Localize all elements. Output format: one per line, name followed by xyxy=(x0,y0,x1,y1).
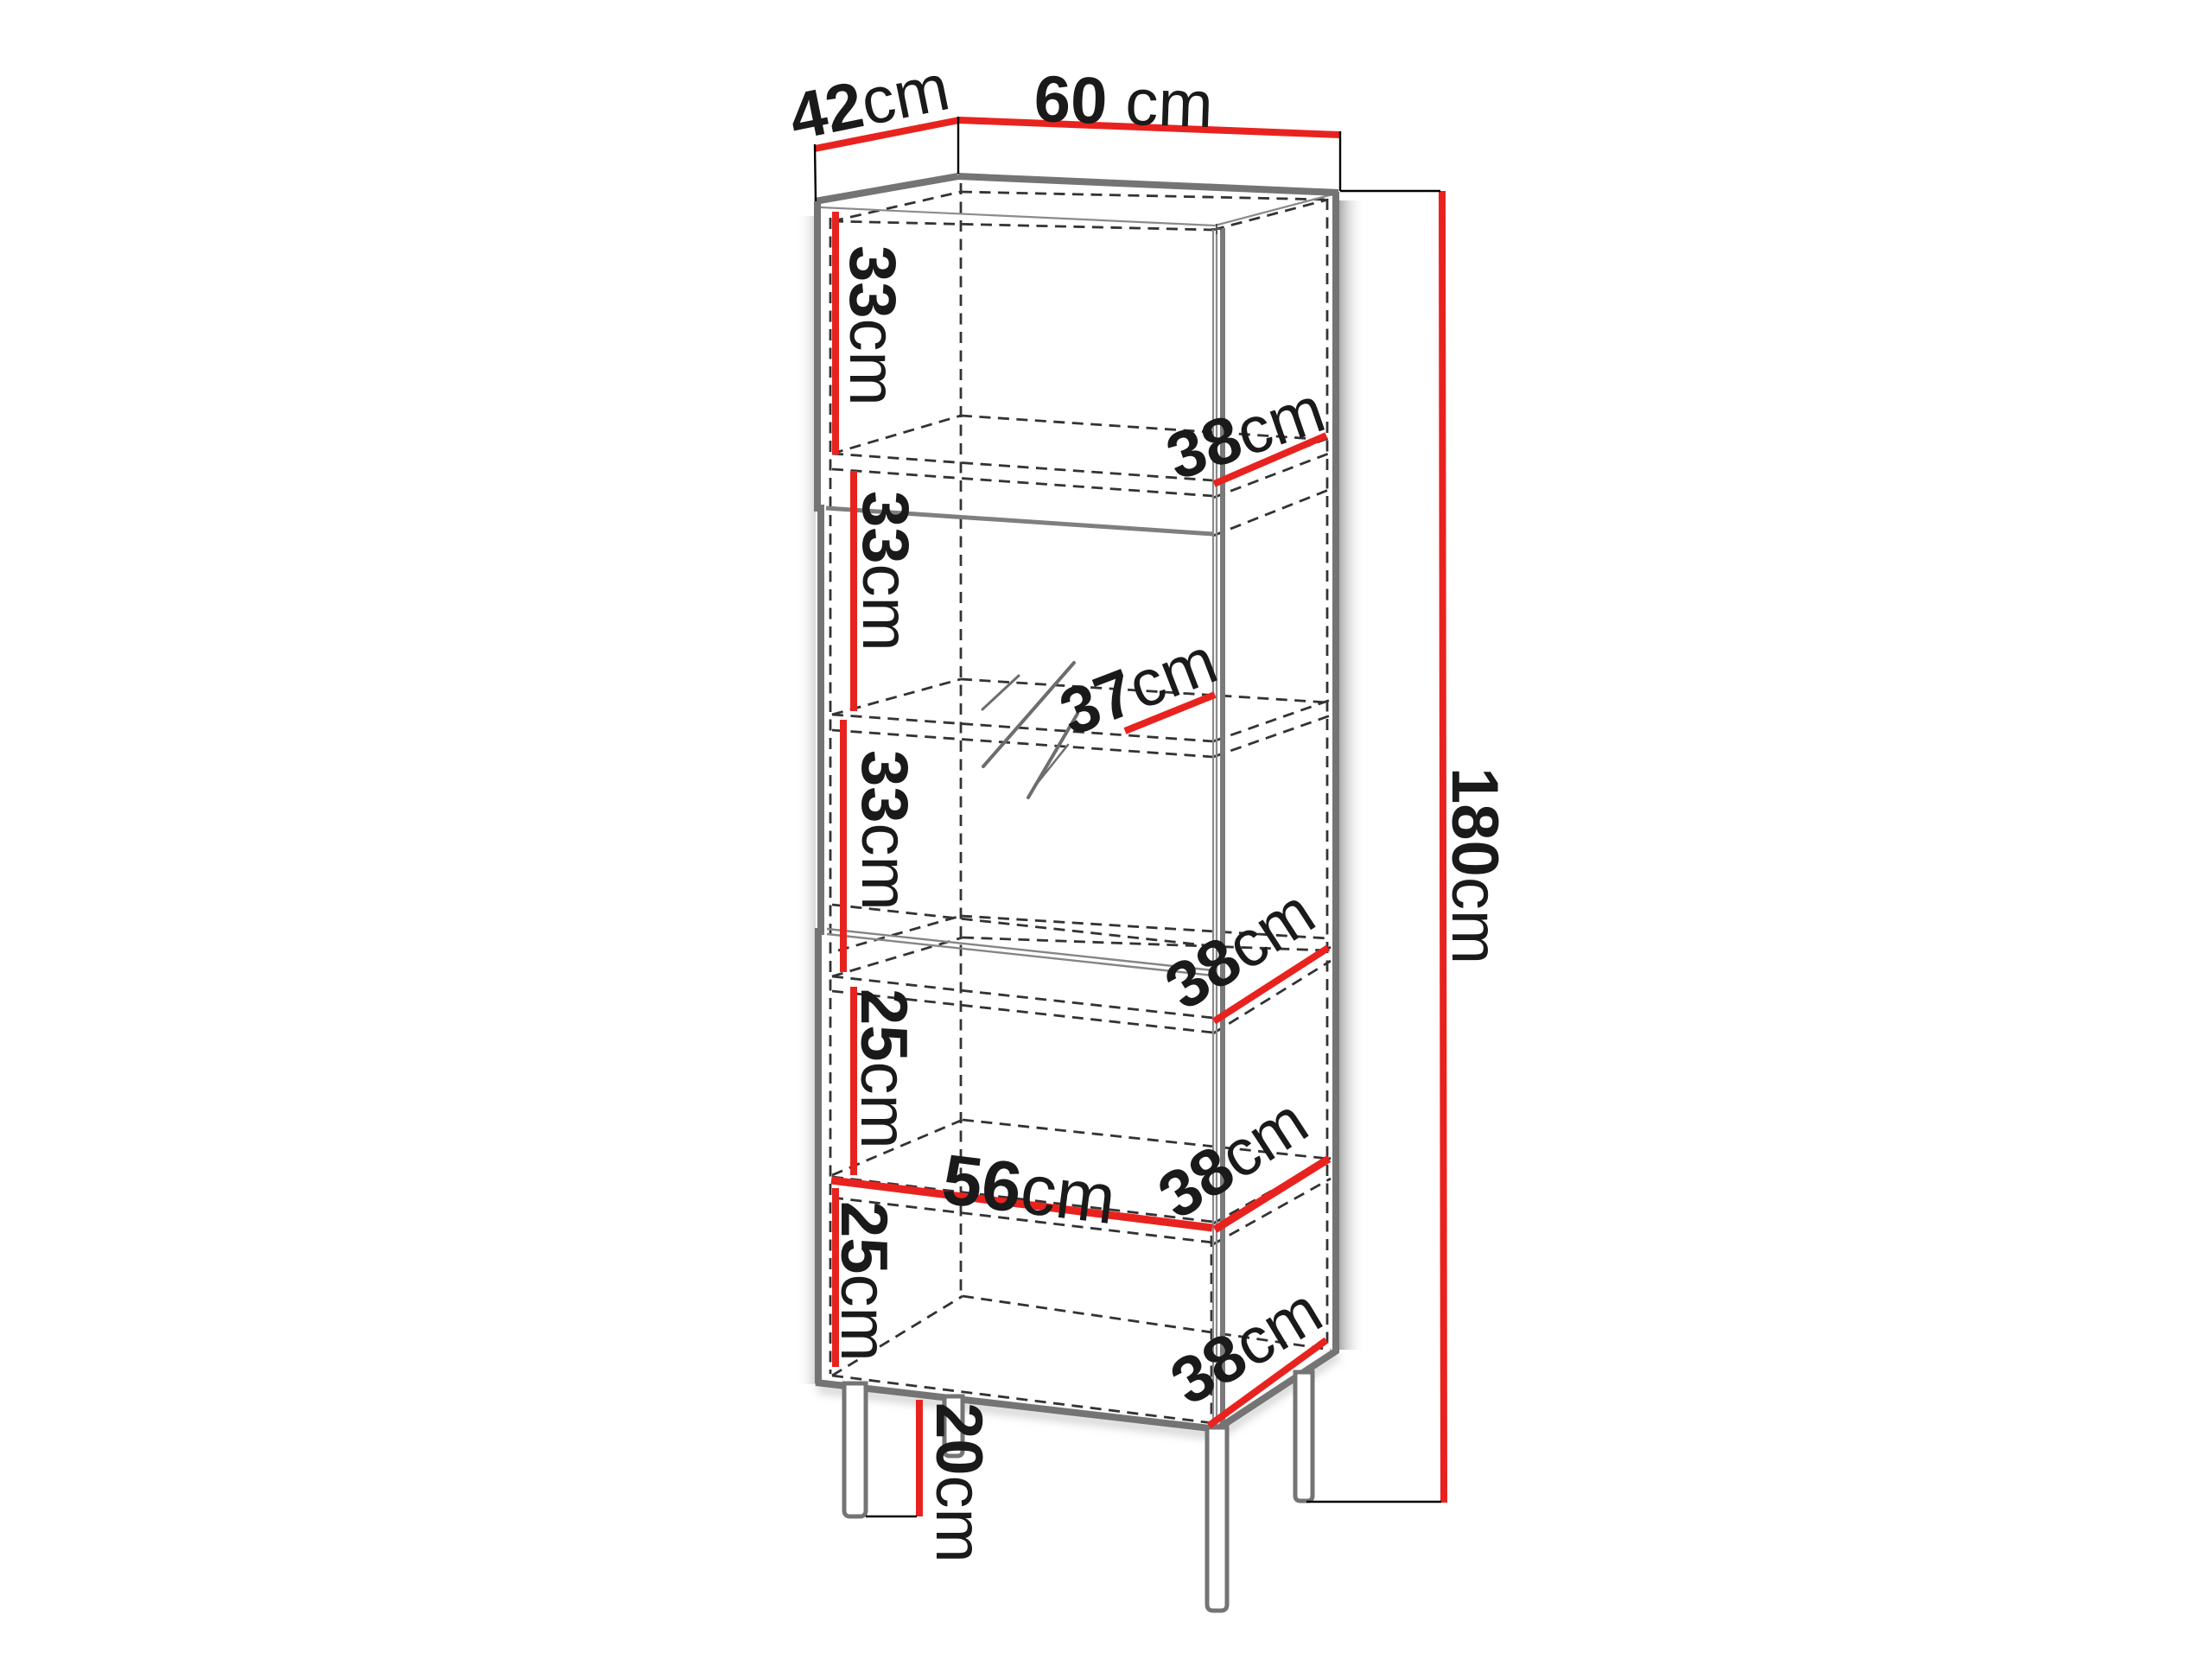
svg-text:60 cm: 60 cm xyxy=(1033,62,1214,142)
svg-text:20cm: 20cm xyxy=(922,1402,995,1563)
svg-text:33cm: 33cm xyxy=(849,491,922,652)
svg-text:33cm: 33cm xyxy=(836,245,909,406)
svg-text:33cm: 33cm xyxy=(848,750,921,911)
svg-text:25cm: 25cm xyxy=(847,988,920,1149)
svg-text:180cm: 180cm xyxy=(1438,767,1511,964)
svg-text:25cm: 25cm xyxy=(827,1201,900,1362)
